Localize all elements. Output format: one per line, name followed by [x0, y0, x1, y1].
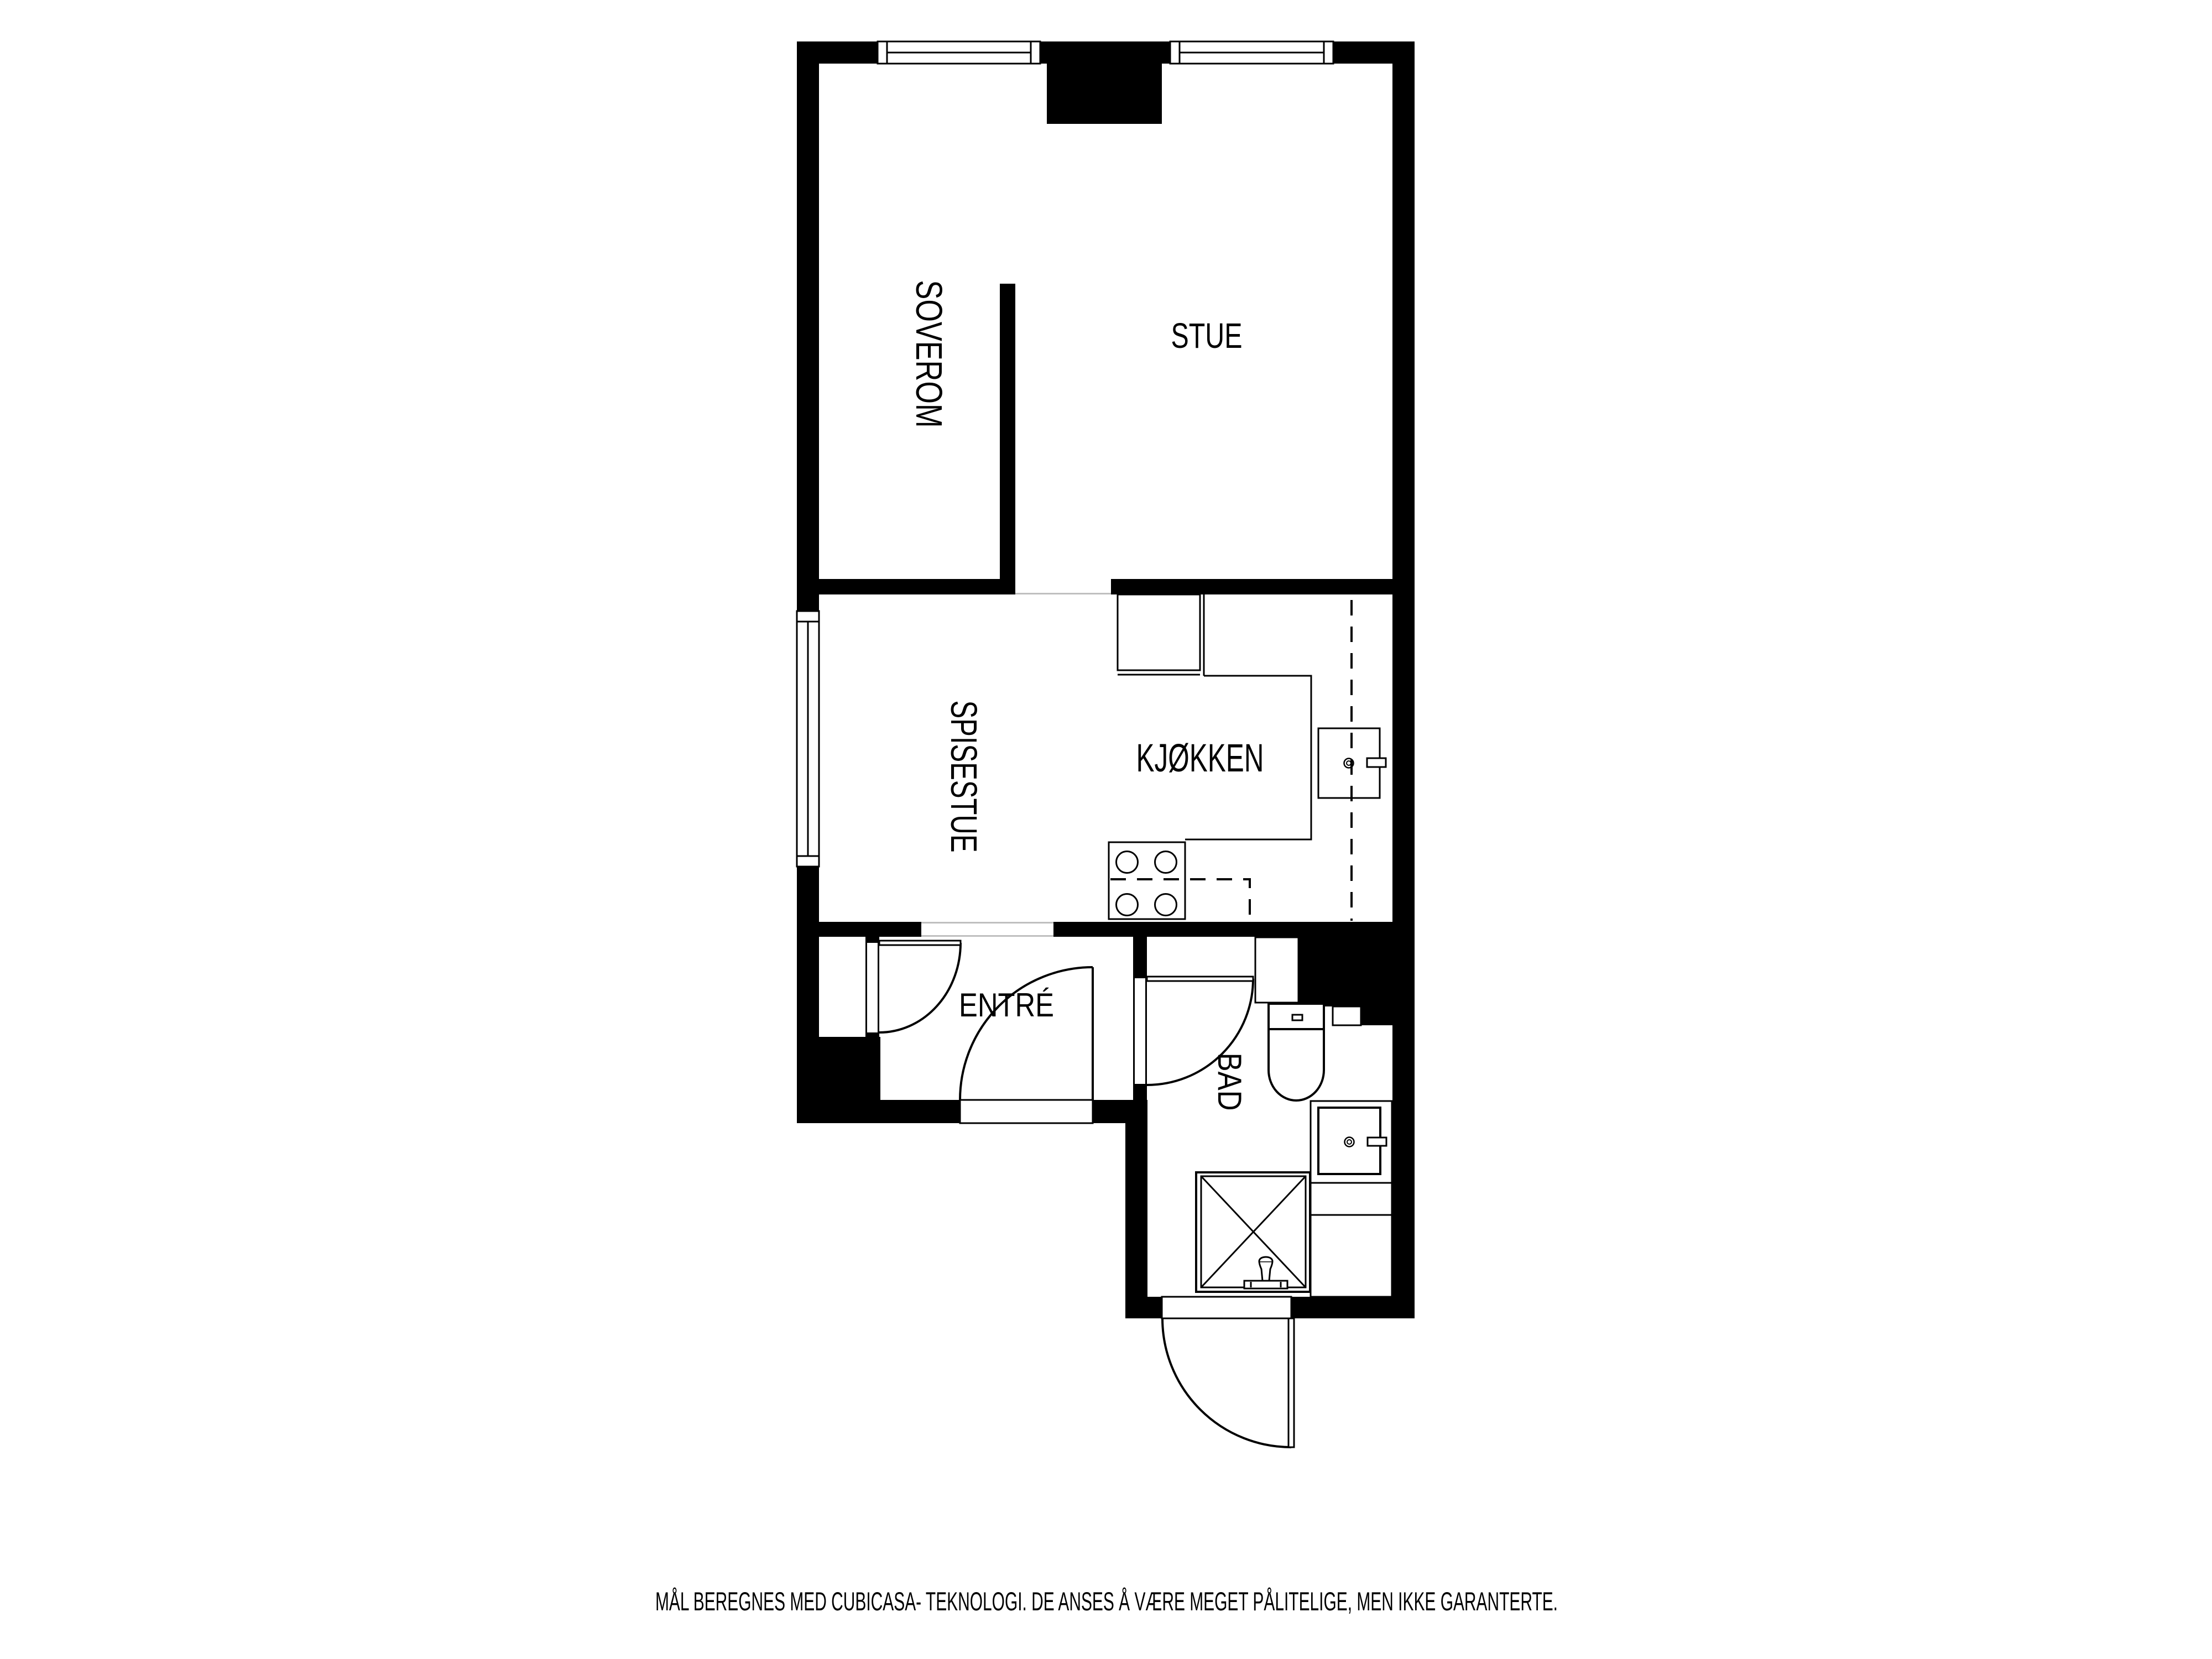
svg-text:BAD: BAD — [1211, 1053, 1248, 1111]
svg-text:SPISESTUE: SPISESTUE — [943, 701, 984, 853]
svg-text:MÅL BEREGNES MED CUBICASA- TEK: MÅL BEREGNES MED CUBICASA- TEKNOLOGI. DE… — [655, 1587, 1558, 1616]
svg-text:STUE: STUE — [1171, 316, 1243, 356]
svg-text:KJØKKEN: KJØKKEN — [1136, 737, 1264, 780]
svg-text:ENTRÉ: ENTRÉ — [959, 987, 1054, 1024]
svg-text:SOVEROM: SOVEROM — [908, 280, 950, 428]
